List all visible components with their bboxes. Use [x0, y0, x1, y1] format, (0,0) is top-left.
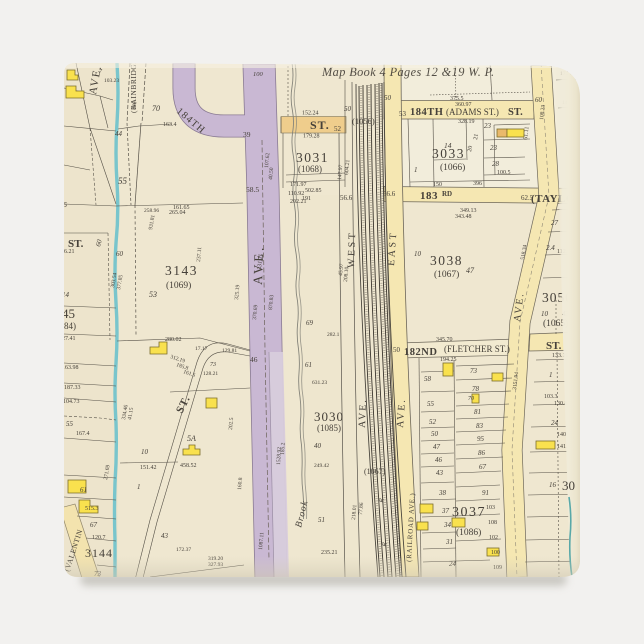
svg-text:202.5: 202.5: [228, 417, 235, 430]
svg-text:47: 47: [466, 266, 475, 275]
svg-text:43: 43: [161, 532, 169, 540]
svg-text:43: 43: [436, 469, 444, 477]
svg-text:100: 100: [491, 550, 500, 556]
svg-text:69: 69: [306, 319, 314, 327]
svg-text:631.23: 631.23: [312, 380, 327, 386]
svg-text:AVE.: AVE.: [357, 398, 369, 428]
svg-text:WEST: WEST: [346, 231, 358, 269]
svg-text:343.48: 343.48: [455, 214, 472, 220]
svg-text:52: 52: [429, 418, 437, 426]
svg-text:202.21: 202.21: [290, 199, 307, 205]
svg-text:50: 50: [344, 105, 352, 113]
svg-text:5A: 5A: [187, 434, 196, 443]
svg-text:3031: 3031: [296, 150, 329, 165]
svg-text:1: 1: [549, 371, 553, 379]
svg-text:345.70: 345.70: [436, 337, 453, 343]
svg-text:(1069): (1069): [166, 280, 191, 291]
svg-text:39: 39: [243, 130, 251, 139]
svg-text:47: 47: [433, 443, 441, 451]
svg-text:(1086): (1086): [456, 527, 481, 538]
svg-text:73: 73: [210, 362, 216, 368]
svg-text:1528.92: 1528.92: [276, 447, 283, 465]
svg-text:51: 51: [318, 516, 325, 524]
svg-text:10: 10: [141, 448, 149, 456]
svg-text:163.98: 163.98: [62, 365, 79, 371]
svg-text:56.6: 56.6: [383, 190, 396, 198]
svg-text:108: 108: [488, 520, 497, 526]
svg-text:46: 46: [435, 456, 443, 464]
svg-text:3038: 3038: [430, 253, 463, 268]
svg-text:187.33: 187.33: [64, 385, 81, 391]
svg-text:83: 83: [476, 422, 484, 430]
svg-text:61: 61: [305, 361, 312, 369]
svg-text:249.42: 249.42: [314, 463, 329, 469]
svg-text:34: 34: [443, 521, 452, 529]
svg-text:360.97: 360.97: [455, 102, 472, 108]
svg-text:(1067): (1067): [364, 467, 386, 476]
svg-text:502.85: 502.85: [305, 188, 322, 194]
svg-text:58: 58: [424, 375, 432, 383]
svg-text:52: 52: [334, 125, 342, 133]
svg-text:(1056): (1056): [352, 116, 375, 126]
svg-text:40.50: 40.50: [268, 167, 275, 180]
svg-text:67: 67: [479, 463, 487, 471]
svg-text:20: 20: [467, 145, 474, 152]
svg-text:10: 10: [541, 310, 549, 318]
svg-text:194.25: 194.25: [440, 357, 457, 363]
svg-text:396: 396: [473, 181, 482, 187]
svg-text:ST.: ST.: [508, 107, 523, 118]
svg-text:183: 183: [420, 190, 438, 202]
svg-text:95: 95: [477, 435, 485, 443]
svg-text:103.3: 103.3: [544, 394, 558, 400]
svg-text:2.4: 2.4: [546, 244, 555, 252]
svg-text:3030: 3030: [314, 409, 344, 424]
svg-text:102: 102: [489, 535, 498, 541]
svg-text:3143: 3143: [165, 263, 198, 278]
svg-text:27: 27: [551, 219, 559, 227]
svg-text:3037: 3037: [452, 505, 486, 520]
svg-text:150: 150: [433, 182, 442, 188]
svg-text:91: 91: [482, 489, 489, 497]
svg-text:53: 53: [399, 110, 407, 118]
svg-text:78: 78: [472, 385, 480, 393]
svg-text:55: 55: [427, 400, 435, 408]
svg-text:152.24: 152.24: [302, 111, 319, 117]
svg-text:184TH: 184TH: [410, 107, 443, 118]
svg-text:73: 73: [470, 367, 478, 375]
svg-text:235.21: 235.21: [321, 550, 338, 556]
svg-text:16: 16: [549, 481, 557, 489]
svg-text:31: 31: [445, 538, 453, 546]
svg-text:172.37: 172.37: [176, 547, 191, 553]
svg-text:28: 28: [492, 160, 500, 168]
svg-text:182ND: 182ND: [404, 347, 437, 358]
svg-text:17.17: 17.17: [195, 346, 208, 352]
svg-text:151.42: 151.42: [140, 465, 157, 471]
svg-text:1: 1: [137, 483, 141, 491]
svg-text:10: 10: [414, 250, 422, 258]
svg-text:140: 140: [557, 432, 566, 438]
svg-text:50: 50: [431, 430, 439, 438]
svg-text:100.5: 100.5: [497, 170, 511, 176]
svg-text:58.5: 58.5: [246, 185, 259, 194]
svg-text:44: 44: [115, 130, 123, 138]
svg-text:265.04: 265.04: [169, 210, 186, 216]
svg-text:103: 103: [486, 505, 495, 511]
svg-text:104.73: 104.73: [63, 399, 80, 405]
svg-text:56.6: 56.6: [340, 194, 353, 202]
svg-text:60: 60: [535, 96, 543, 104]
svg-text:23: 23: [490, 144, 498, 152]
svg-text:163.4: 163.4: [163, 122, 177, 128]
svg-text:77.86: 77.86: [358, 502, 365, 515]
svg-text:(1068): (1068): [298, 164, 322, 174]
svg-text:23: 23: [484, 122, 492, 130]
svg-text:55: 55: [118, 176, 128, 186]
svg-text:ST.: ST.: [546, 340, 562, 352]
svg-text:21: 21: [473, 133, 480, 140]
svg-text:27.41: 27.41: [62, 336, 76, 342]
svg-text:1: 1: [414, 166, 418, 174]
svg-text:55: 55: [66, 420, 74, 428]
svg-text:ST.: ST.: [310, 118, 330, 132]
svg-text:280.02: 280.02: [165, 337, 182, 343]
svg-text:(ADAMS ST.): (ADAMS ST.): [446, 107, 499, 117]
svg-text:50: 50: [393, 346, 401, 354]
svg-text:81: 81: [474, 408, 481, 416]
svg-text:RD: RD: [442, 190, 452, 198]
svg-text:100: 100: [253, 71, 264, 78]
svg-text:61: 61: [80, 486, 87, 494]
svg-text:46: 46: [250, 355, 258, 364]
svg-text:53: 53: [149, 290, 157, 299]
svg-text:14: 14: [444, 141, 452, 150]
svg-text:282.1: 282.1: [327, 332, 340, 338]
svg-text:70: 70: [152, 104, 160, 113]
svg-text:38: 38: [438, 489, 447, 497]
svg-text:129.81: 129.81: [222, 348, 237, 354]
svg-text:328.19: 328.19: [458, 119, 475, 125]
svg-text:179.28: 179.28: [303, 134, 320, 140]
svg-text:40: 40: [314, 442, 322, 450]
svg-text:160.8: 160.8: [237, 477, 244, 490]
svg-text:258.96: 258.96: [144, 208, 159, 214]
svg-text:167.4: 167.4: [76, 431, 90, 437]
svg-text:24: 24: [551, 419, 559, 427]
svg-text:458.52: 458.52: [180, 463, 197, 469]
svg-text:70: 70: [468, 396, 474, 402]
svg-text:(1066): (1066): [440, 162, 465, 173]
svg-text:37: 37: [441, 507, 450, 515]
svg-text:128.21: 128.21: [203, 371, 218, 377]
svg-text:(FLETCHER ST.): (FLETCHER ST.): [444, 344, 510, 354]
svg-text:AVE.: AVE.: [395, 398, 408, 428]
svg-text:30: 30: [562, 478, 575, 493]
svg-text:103.23: 103.23: [104, 78, 119, 84]
svg-text:(1085): (1085): [317, 423, 341, 433]
svg-text:60: 60: [116, 250, 124, 258]
svg-text:515.3: 515.3: [85, 506, 99, 512]
svg-text:86: 86: [478, 449, 486, 457]
svg-text:50: 50: [384, 94, 392, 102]
svg-text:(1067): (1067): [434, 269, 459, 280]
svg-text:67: 67: [90, 521, 98, 529]
svg-text:120.7: 120.7: [92, 535, 106, 541]
